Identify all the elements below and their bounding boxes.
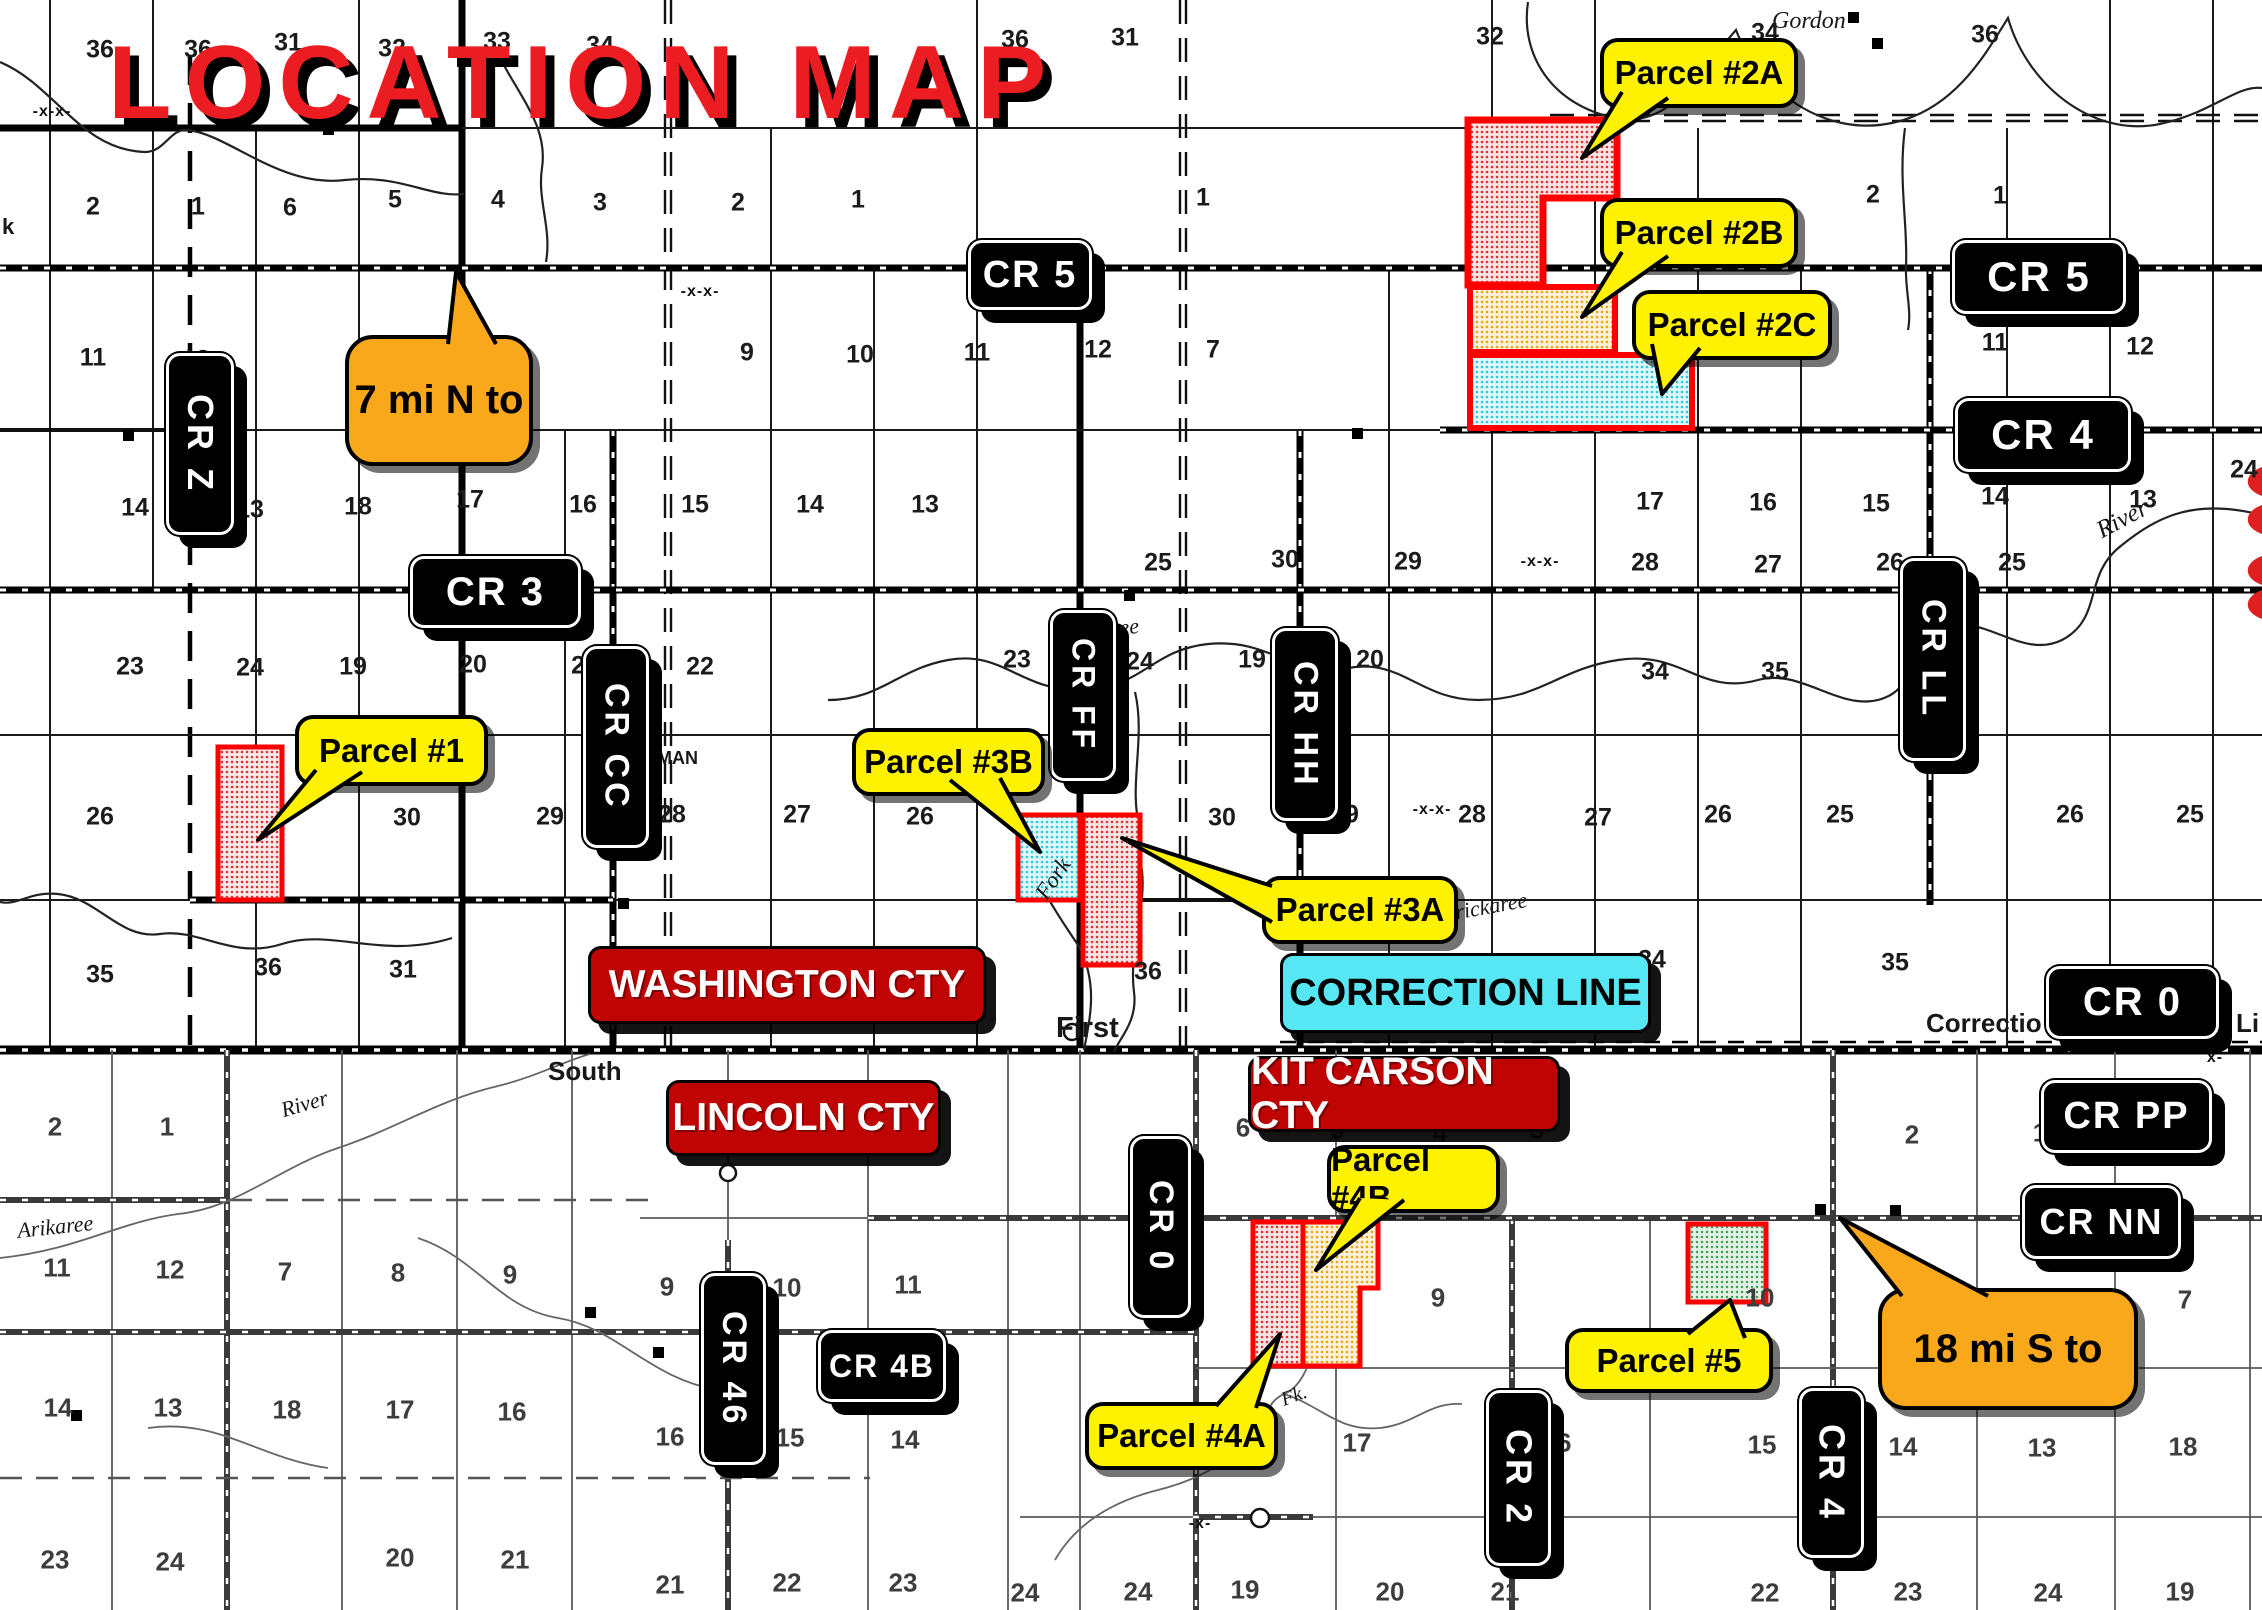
section-number-23: 23 [116,653,144,682]
section-number-1: 1 [1993,182,2007,211]
farm-square-3 [1352,428,1363,439]
place-name-gordon: Gordon [1772,8,1846,35]
section-number-24: 24 [1126,648,1154,677]
road-label-cr-4-2: CR 4 [1955,398,2131,472]
farm-square-0 [123,430,134,441]
section-number-20: 20 [459,651,487,680]
section-number-19: 19 [1238,646,1266,675]
road-label-cr-0-14: CR 0 [1130,1136,1191,1318]
section-number-14: 14 [796,491,824,520]
farm-square-8 [71,1410,82,1421]
red-edge-fragment-3 [2248,590,2262,619]
section-number-14: 14 [1889,1432,1918,1463]
section-number-24: 24 [2230,456,2258,485]
section-number-15: 15 [1862,490,1890,519]
section-number-26: 26 [906,803,934,832]
section-number-17: 17 [1343,1428,1372,1459]
section-number-12: 12 [2126,333,2154,362]
section-number-9: 9 [740,339,754,368]
section-number-11: 11 [964,339,990,368]
road-label-cr-ll-12: CR LL [1900,558,1966,761]
survey-x-mark-1: -x-x- [681,283,720,301]
section-number-18: 18 [344,493,372,522]
road-label-cr-hh-11: CR HH [1272,628,1338,821]
section-number-18: 18 [273,1395,302,1426]
callout-parcel-2a: Parcel #2A [1600,38,1798,108]
section-number-24: 24 [156,1547,185,1578]
section-number-16: 16 [1749,489,1777,518]
section-number-2: 2 [86,193,100,222]
river-lower-4 [148,1426,328,1468]
section-number-25: 25 [1144,549,1172,578]
town-circle-1 [1251,1509,1269,1527]
section-number-12: 12 [1084,336,1112,365]
section-number-25: 25 [2176,801,2204,830]
section-number-25: 25 [1826,801,1854,830]
section-number-19: 19 [339,653,367,682]
banner-correction-line: CORRECTION LINE [1280,953,1651,1033]
road-label-cr-0-4: CR 0 [2046,966,2219,1039]
section-number-3: 3 [593,189,607,218]
section-number-2: 2 [731,189,745,218]
road-label-cr-46-13: CR 46 [701,1273,766,1465]
section-number-32: 32 [1476,23,1504,52]
section-number-17: 17 [456,486,484,515]
section-number-26: 26 [2056,801,2084,830]
callout-parcel-3b: Parcel #3B [852,728,1045,796]
section-number-18: 18 [2169,1432,2198,1463]
town-circle-2 [720,1165,736,1181]
survey-x-mark-4: -x- [1189,1515,1212,1533]
place-name-k: k [2,214,14,240]
callout-parcel-4a: Parcel #4A [1085,1402,1278,1470]
section-number-30: 30 [393,804,421,833]
river-upper-4 [828,508,2262,701]
callout-parcel-1: Parcel #1 [295,715,488,786]
road-label-cr-4-16: CR 4 [1799,1388,1864,1558]
section-number-9: 9 [660,1272,674,1303]
callout-parcel-2c: Parcel #2C [1632,290,1832,360]
section-number-35: 35 [86,961,114,990]
road-label-cr-pp-5: CR PP [2041,1080,2212,1153]
section-number-10: 10 [773,1273,802,1304]
section-number-27: 27 [1754,551,1782,580]
section-number-17: 17 [1636,488,1664,517]
place-name-correctio: Correctio [1926,1008,2042,1039]
banner-kit-carson-cty: KIT CARSON CTY [1248,1056,1560,1132]
place-name-rman: RMAN [644,748,698,769]
section-number-28: 28 [658,801,686,830]
farm-square-11 [1890,1205,1901,1216]
place-name-south: South [548,1056,622,1087]
section-number-16: 16 [656,1422,685,1453]
section-number-9: 9 [503,1260,517,1291]
section-number-24: 24 [1011,1578,1040,1609]
place-name-li: Li [2236,1008,2259,1039]
section-number-27: 27 [1584,804,1612,833]
section-number-9: 9 [1431,1283,1445,1314]
red-edge-fragment-2 [2248,556,2262,585]
section-number-13: 13 [911,491,939,520]
farm-square-6 [1848,12,1859,23]
section-number-23: 23 [889,1568,918,1599]
section-number-15: 15 [1748,1430,1777,1461]
section-number-28: 28 [1631,549,1659,578]
section-number-36: 36 [1134,958,1162,987]
river-lower-2 [1284,1394,1462,1428]
section-number-20: 20 [1376,1577,1405,1608]
section-number-21: 21 [501,1545,530,1576]
section-number-10: 10 [846,341,874,370]
road-label-cr-5-0: CR 5 [968,240,1092,310]
road-label-cr-3-3: CR 3 [410,556,581,628]
section-number-4: 4 [491,186,505,215]
parcel-3a-dots [1083,815,1140,965]
farm-square-7 [1872,38,1883,49]
survey-x-mark-5: x- [2207,1049,2223,1067]
section-number-23: 23 [41,1545,70,1576]
section-number-2: 2 [48,1112,62,1143]
survey-x-mark-2: -x-x- [1413,801,1452,819]
section-number-10: 10 [1746,1283,1775,1314]
farm-square-12 [585,1307,596,1318]
road-label-cr-5-1: CR 5 [1952,240,2126,314]
callout-parcel-4b: Parcel #4B [1327,1145,1500,1213]
parcel-4b-dots [1303,1222,1378,1366]
section-number-1: 1 [160,1112,174,1143]
section-number-21: 21 [1491,1577,1520,1608]
road-label-cr-2-15: CR 2 [1486,1390,1551,1566]
section-number-31: 31 [389,956,417,985]
callout-18-mi-s-to: 18 mi S to [1878,1288,2138,1410]
section-number-11: 11 [80,344,106,373]
road-label-cr-nn-6: CR NN [2022,1185,2181,1259]
callout-parcel-5: Parcel #5 [1565,1328,1773,1393]
section-number-7: 7 [1206,336,1220,365]
section-number-11: 11 [43,1253,71,1284]
section-number-11: 11 [894,1270,922,1301]
section-number-1: 1 [191,193,205,222]
road-label-cr-4b-7: CR 4B [818,1330,946,1402]
farm-square-5 [618,898,629,909]
section-number-23: 23 [1894,1577,1923,1608]
survey-x-mark-0: -x-x- [33,103,72,121]
section-number-2: 2 [1866,181,1880,210]
banner-washington-cty: WASHINGTON CTY [588,946,986,1024]
section-number-20: 20 [1356,646,1384,675]
section-number-14: 14 [121,494,149,523]
section-number-7: 7 [278,1257,292,1288]
section-number-36: 36 [1971,21,1999,50]
section-number-24: 24 [1124,1577,1153,1608]
callout-parcel-3a: Parcel #3A [1262,876,1458,944]
section-number-16: 16 [569,491,597,520]
road-label-cr-cc-9: CR CC [583,646,649,848]
section-number-26: 26 [1704,801,1732,830]
parcel-4a-dots [1253,1222,1303,1366]
section-number-27: 27 [783,801,811,830]
river-upper-3 [1902,128,1909,330]
location-map-page: { "title": "LOCATION MAP", "colors": { "… [0,0,2262,1610]
parcel-2c-dots [1470,355,1692,428]
section-number-8: 8 [391,1258,405,1289]
section-number-21: 21 [656,1570,685,1601]
section-number-14: 14 [44,1393,73,1424]
section-number-28: 28 [1458,801,1486,830]
section-number-12: 12 [156,1255,185,1286]
section-number-2: 2 [1905,1120,1919,1151]
section-number-6: 6 [283,194,297,223]
section-number-15: 15 [681,491,709,520]
road-label-cr-ff-10: CR FF [1050,610,1116,781]
section-number-16: 16 [498,1397,527,1428]
section-number-13: 13 [2028,1433,2057,1464]
section-number-35: 35 [1761,658,1789,687]
section-number-11: 11 [1982,329,2008,358]
section-number-30: 30 [1271,546,1299,575]
section-number-1: 1 [851,186,865,215]
section-number-5: 5 [388,186,402,215]
section-number-14: 14 [891,1425,920,1456]
section-number-17: 17 [386,1395,415,1426]
river-upper-5 [1135,692,1140,828]
section-number-25: 25 [1998,549,2026,578]
farm-square-9 [653,1347,664,1358]
callout-parcel-2b: Parcel #2B [1600,198,1798,268]
section-number-29: 29 [1394,548,1422,577]
section-number-15: 15 [776,1423,805,1454]
section-number-35: 35 [1881,949,1909,978]
section-number-26: 26 [86,803,114,832]
farm-square-10 [1815,1204,1826,1215]
place-name-first: First [1056,1012,1119,1045]
section-number-31: 31 [1111,24,1139,53]
road-label-cr-z-8: CR Z [166,353,234,535]
section-number-34: 34 [1641,658,1669,687]
section-number-7: 7 [2178,1285,2192,1316]
section-number-22: 22 [1751,1578,1780,1609]
section-number-24: 24 [2034,1578,2063,1609]
section-number-20: 20 [386,1543,415,1574]
parcel-1-dots [218,747,282,900]
river-lower-3 [418,1238,718,1390]
section-number-13: 13 [154,1393,183,1424]
banner-lincoln-cty: LINCOLN CTY [666,1080,941,1156]
section-number-19: 19 [2166,1577,2195,1608]
section-number-19: 19 [1231,1575,1260,1606]
callout-7-mi-n-to: 7 mi N to [345,335,533,466]
section-number-23: 23 [1003,646,1031,675]
page-title: LOCATION MAP [108,24,1059,143]
section-number-29: 29 [536,803,564,832]
farm-square-4 [1124,590,1135,601]
section-number-24: 24 [236,654,264,683]
section-number-14: 14 [1981,483,2009,512]
parcel-2b-dots [1470,287,1615,352]
section-number-13: 13 [236,496,264,525]
section-number-22: 22 [773,1568,802,1599]
section-number-30: 30 [1208,804,1236,833]
survey-x-mark-3: -x-x- [1521,553,1560,571]
section-number-36: 36 [254,954,282,983]
section-number-1: 1 [1196,184,1210,213]
red-edge-fragment-1 [2248,505,2262,534]
section-number-22: 22 [686,653,714,682]
